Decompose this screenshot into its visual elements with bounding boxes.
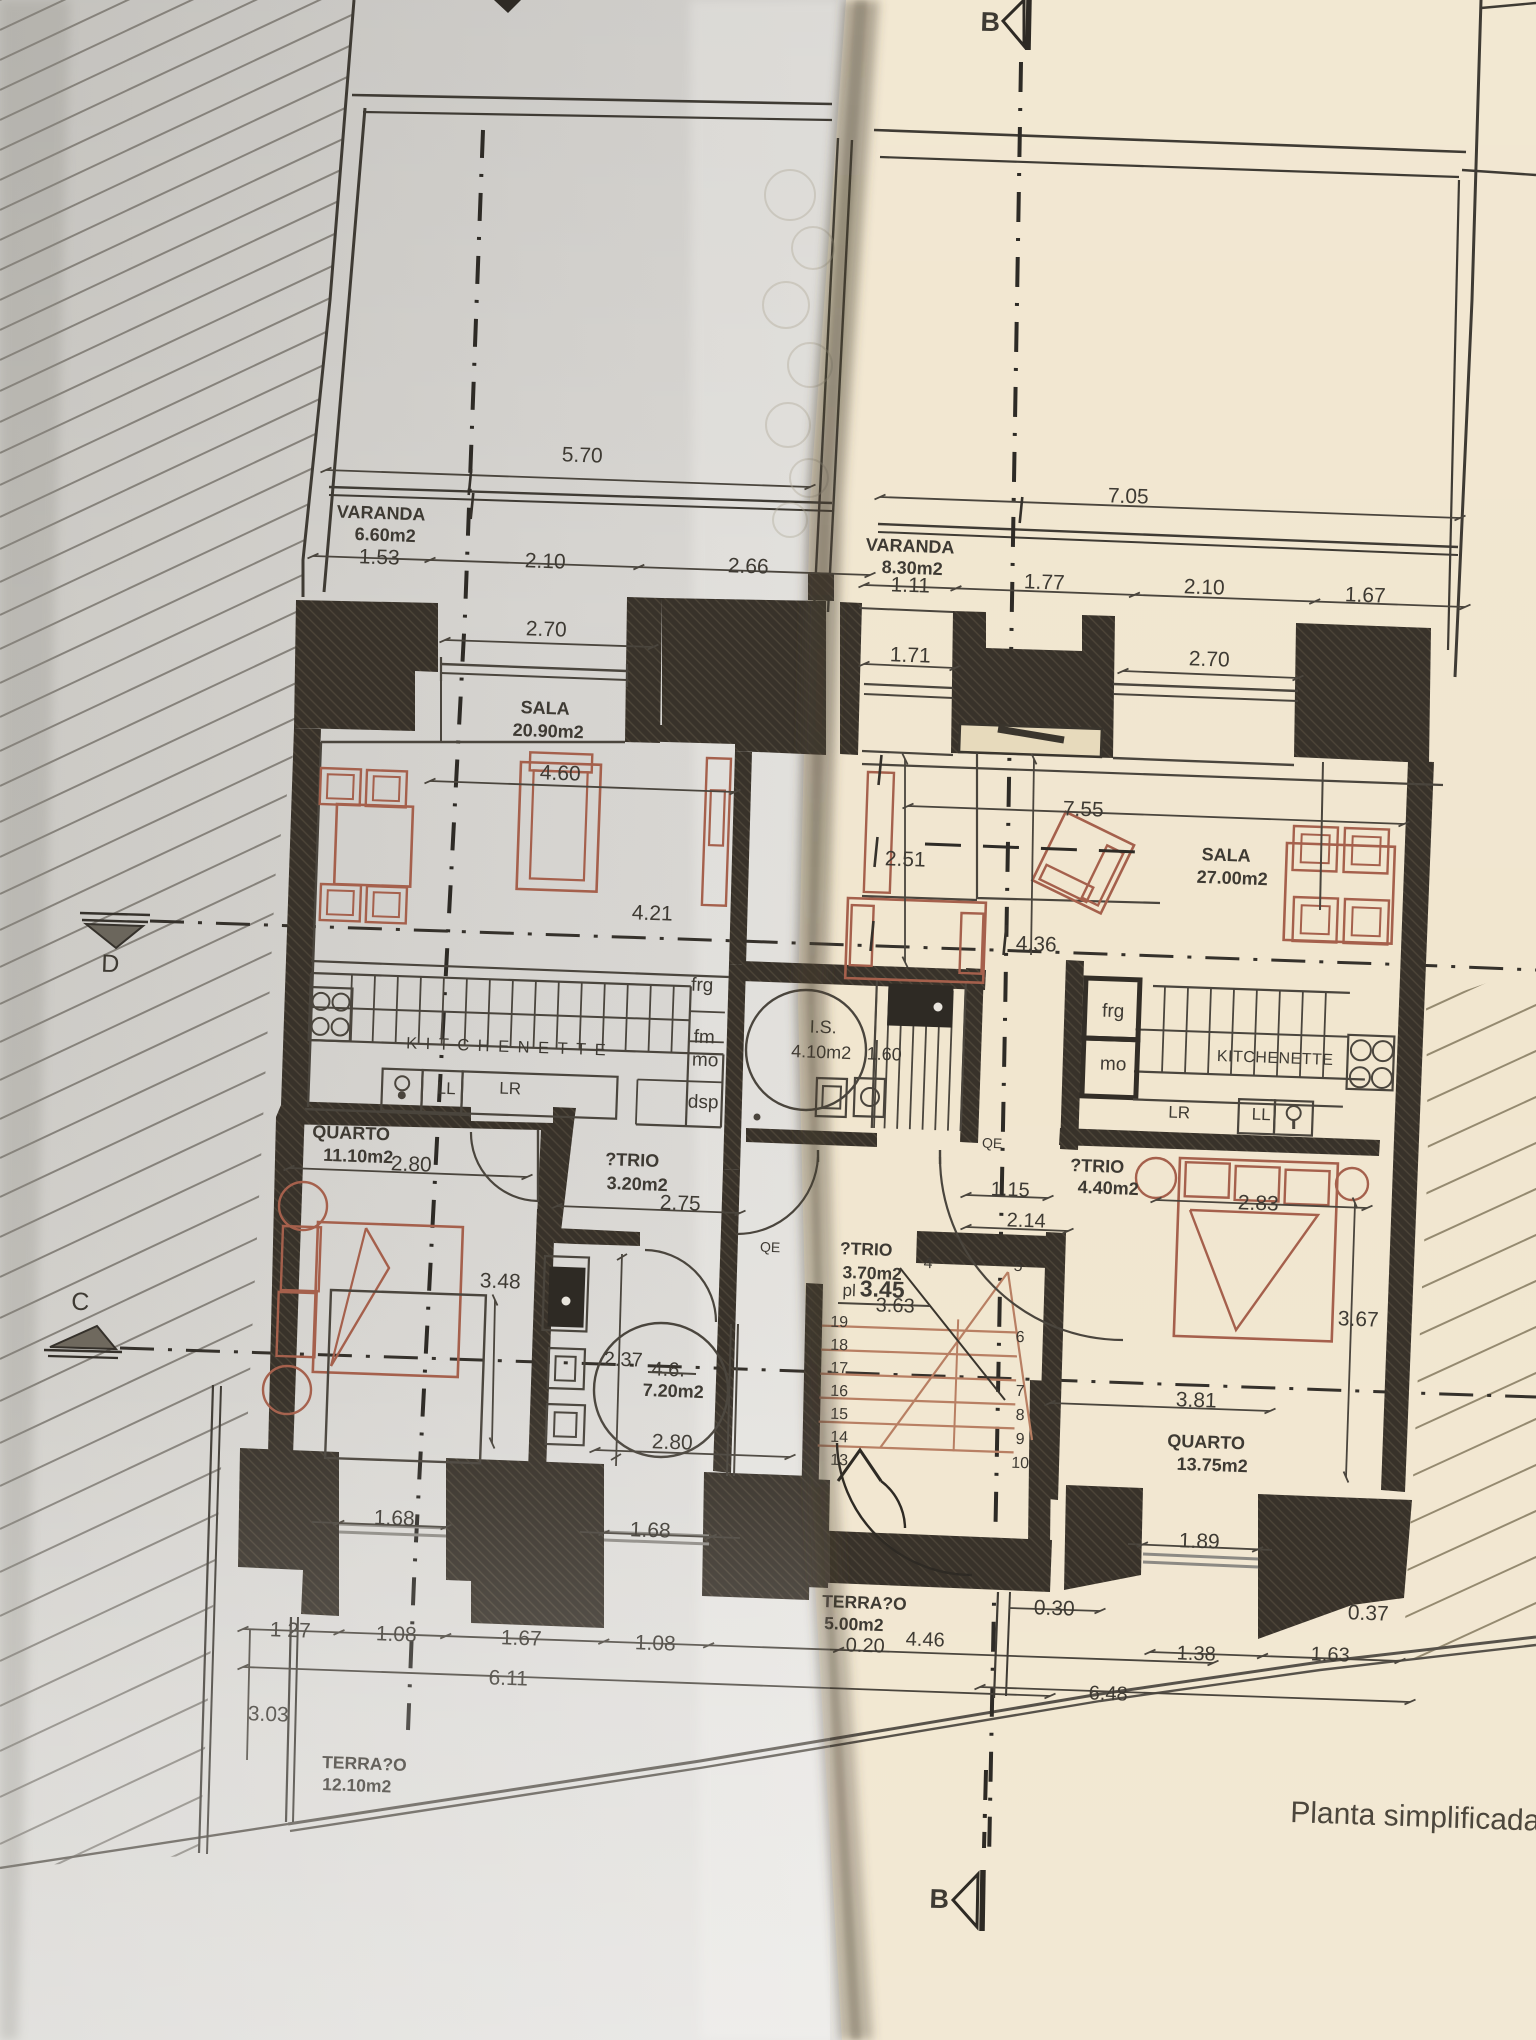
svg-text:2.70: 2.70 bbox=[525, 617, 567, 641]
svg-text:QE: QE bbox=[760, 1239, 781, 1256]
svg-text:2.10: 2.10 bbox=[1183, 575, 1225, 599]
svg-text:4.60: 4.60 bbox=[539, 761, 581, 785]
svg-text:1.63: 1.63 bbox=[1310, 1643, 1350, 1666]
svg-text:1.89: 1.89 bbox=[1178, 1529, 1220, 1553]
svg-text:1.38: 1.38 bbox=[1176, 1642, 1216, 1665]
svg-text:5.70: 5.70 bbox=[561, 443, 603, 467]
svg-text:3.81: 3.81 bbox=[1175, 1388, 1217, 1412]
svg-text:11.10m2: 11.10m2 bbox=[323, 1145, 394, 1167]
svg-text:2.83: 2.83 bbox=[1237, 1191, 1279, 1215]
svg-text:13.75m2: 13.75m2 bbox=[1176, 1454, 1248, 1476]
svg-text:D: D bbox=[101, 950, 120, 979]
svg-text:fm: fm bbox=[693, 1027, 715, 1049]
svg-text:4.21: 4.21 bbox=[631, 901, 673, 925]
svg-text:dsp: dsp bbox=[688, 1091, 719, 1113]
svg-text:2.75: 2.75 bbox=[659, 1191, 701, 1215]
svg-text:3.48: 3.48 bbox=[479, 1269, 521, 1293]
svg-text:0.37: 0.37 bbox=[1347, 1601, 1389, 1625]
svg-text:2.70: 2.70 bbox=[1188, 647, 1230, 671]
svg-text:1.67: 1.67 bbox=[1344, 583, 1386, 607]
svg-text:2.80: 2.80 bbox=[390, 1152, 432, 1176]
svg-text:3.20m2: 3.20m2 bbox=[606, 1173, 668, 1195]
svg-text:3.67: 3.67 bbox=[1337, 1307, 1379, 1331]
svg-text:LR: LR bbox=[499, 1079, 521, 1099]
svg-text:LL: LL bbox=[1251, 1105, 1271, 1125]
svg-text:frg: frg bbox=[1102, 1001, 1125, 1023]
svg-text:27.00m2: 27.00m2 bbox=[1196, 867, 1268, 889]
svg-text:SALA: SALA bbox=[520, 697, 570, 719]
svg-text:frg: frg bbox=[691, 975, 714, 997]
svg-text:mo: mo bbox=[1100, 1054, 1127, 1076]
svg-text:C: C bbox=[71, 1288, 90, 1317]
svg-text:LL: LL bbox=[436, 1079, 456, 1099]
svg-text:?TRIO: ?TRIO bbox=[605, 1149, 660, 1171]
svg-text:20.90m2: 20.90m2 bbox=[512, 720, 584, 742]
svg-text:QUARTO: QUARTO bbox=[1167, 1431, 1245, 1454]
svg-text:LR: LR bbox=[1168, 1103, 1190, 1123]
svg-text:QUARTO: QUARTO bbox=[312, 1122, 390, 1145]
svg-text:2.37: 2.37 bbox=[603, 1348, 643, 1371]
svg-text:mo: mo bbox=[692, 1050, 719, 1072]
svg-text:2.66: 2.66 bbox=[727, 554, 769, 578]
svg-text:4.6.: 4.6. bbox=[651, 1358, 685, 1381]
svg-text:SALA: SALA bbox=[1201, 844, 1251, 866]
svg-text:7.05: 7.05 bbox=[1107, 484, 1149, 508]
